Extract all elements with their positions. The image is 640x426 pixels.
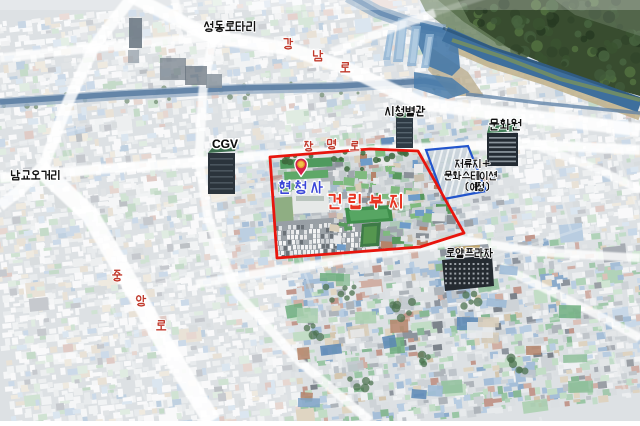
svg-text:CGV: CGV (212, 137, 238, 151)
